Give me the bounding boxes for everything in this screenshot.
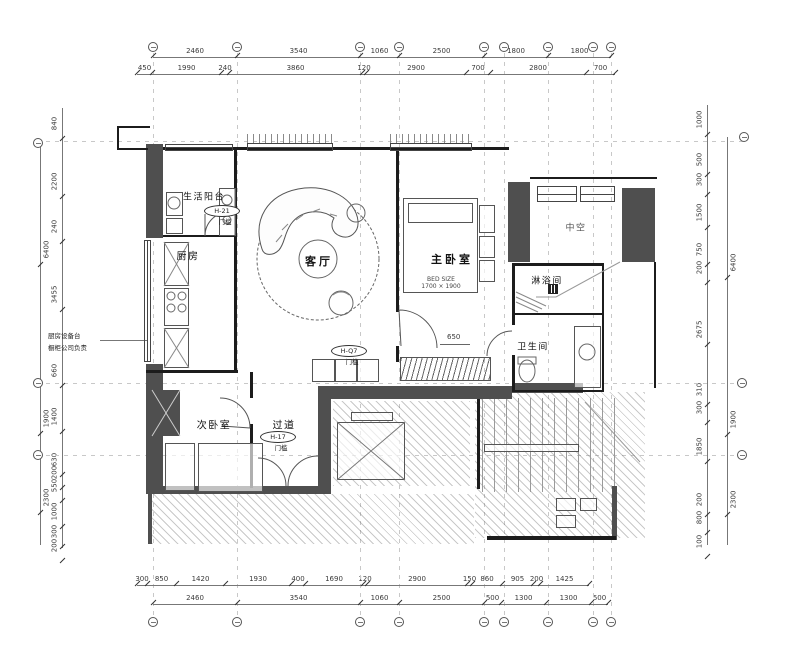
dim-label: 2200 [51,162,60,202]
door-tag-h21-sub: 门槛 [219,216,232,226]
dim-label: 1400 [51,397,60,437]
dim-label: 1900 [730,400,739,440]
dim-label: 450 [125,64,165,73]
room-label-void: 中空 [565,221,586,234]
window [390,143,472,151]
dim-label: 2300 [730,480,739,520]
dim-chain-line [707,105,708,545]
wall-segment [602,263,604,392]
fixture-box [580,498,597,511]
wall-segment [512,355,515,392]
wall-segment [250,372,253,398]
grid-bubble [479,617,489,627]
plan-vector-layer [0,0,800,659]
master-door-arc [399,310,437,348]
wall-segment [234,150,237,372]
shear-wall [508,182,530,262]
grid-bubble [543,617,553,627]
grid-bubble [232,42,242,52]
window-sill-hatch [247,134,333,143]
fixture-box [198,443,263,492]
fixture-box [479,205,495,233]
dim-tick [60,558,66,564]
shear-wall [146,144,163,238]
wall-segment [514,263,604,266]
dim-label: 2460 [175,47,215,56]
wall-segment [396,150,399,312]
window [144,240,151,362]
annotation-leader-line [100,340,148,341]
dim-label: 1990 [167,64,207,73]
window-sill-hatch [390,134,472,143]
dim-label: 2675 [696,310,705,350]
grid-bubble [588,42,598,52]
dim-label: 1420 [181,575,221,584]
dim-chain-line [62,108,63,548]
grid-bubble [499,617,509,627]
grid-bubble [394,42,404,52]
wall-segment [654,262,656,388]
side-table [347,204,365,222]
room-label-kitchen: 厨房 [177,248,200,263]
shear-wall [152,390,180,436]
fixture-box [351,412,393,421]
dim-label: 2500 [422,594,462,603]
dim-label: 100 [696,522,705,562]
fixture-box [556,498,576,511]
dim-tick [705,554,711,560]
dim-chain-line [727,137,728,545]
fixture-box [166,218,183,234]
dim-chain-line [137,585,589,586]
dim-label: 400 [278,575,318,584]
dim-label: 200 [51,526,60,566]
kitchen-annotation-line2: 橱柜公司负责 [48,343,87,353]
wall-segment [117,126,119,150]
dim-label: 500 [580,594,620,603]
dim-label: 2300 [43,478,52,518]
wall-segment [514,313,604,315]
fixture-box [408,203,473,223]
dim-label: 1500 [696,193,705,233]
grid-bubble [606,617,616,627]
armchair [329,291,353,315]
dim-label: 2460 [175,594,215,603]
fixture-box [164,328,189,368]
dim-chain-line [153,604,608,605]
window [247,143,333,151]
dim-label: 1300 [504,594,544,603]
dim-label: 3455 [51,275,60,315]
fixture-box [484,444,579,452]
tv-cabinet [400,357,491,381]
grid-bubble [355,617,365,627]
grid-bubble [737,450,747,460]
dim-tick [587,581,593,587]
dim-label: 1900 [43,399,52,439]
room-label-shower: 淋浴间 [531,274,563,287]
shear-wall [148,494,152,544]
wall-segment [117,126,150,128]
dim-label: 1850 [696,427,705,467]
door-tag-h17-sub: 门槛 [275,442,288,452]
grid-bubble [479,42,489,52]
window [580,186,615,202]
dim-label: 3540 [279,594,319,603]
fixture-box [556,515,576,528]
grid-bubble [737,378,747,388]
shower-screen [516,292,546,312]
door-tag-hq7-sub: 门槛 [346,356,359,366]
grid-bubble [355,42,365,52]
dim-label: 6400 [730,243,739,283]
dim-label: 2500 [422,47,462,56]
dim-label: 1000 [696,100,705,140]
hatched-area [152,494,474,544]
dim-label: 300 [696,388,705,428]
dim-label: 240 [205,64,245,73]
dim-tick [60,544,66,550]
wall-segment [487,536,616,540]
curved-sofa [259,188,358,255]
sofa-pattern [276,209,337,242]
dim-label: 660 [51,351,60,391]
fixture-box [165,443,195,491]
fixture-box [479,236,495,258]
dim-label: 240 [51,207,60,247]
dim-label: 840 [51,104,60,144]
wall-segment [514,390,604,392]
dim-label: 3540 [279,47,319,56]
dim-label: 2800 [518,64,558,73]
grid-bubble [232,617,242,627]
grid-bubble [148,42,158,52]
dim-chain-line [137,74,615,75]
dim-label: 1930 [238,575,278,584]
wall-segment [512,263,515,325]
shear-wall [612,486,617,540]
dim-label: 1425 [545,575,585,584]
entry-door-arcs [258,456,318,486]
shear-wall [318,399,331,488]
dim-label: 2900 [396,64,436,73]
fixture-box [479,260,495,282]
dim-label: 3860 [276,64,316,73]
dim-label: 6400 [43,230,52,270]
room-label-living: 客厅 [305,253,333,269]
kitchen-annotation-line1: 厨房设备台 [48,331,81,341]
dim-chain-line [153,57,611,58]
grid-bubble [499,42,509,52]
wall-segment [530,177,657,179]
grid-bubble [33,138,43,148]
shear-wall [318,386,512,399]
armchair-back [333,292,349,295]
door-dim-line [440,344,470,345]
fixture-box [337,422,405,480]
fixture-box [334,360,336,381]
grid-bubble [33,378,43,388]
wall-segment [477,399,480,489]
room-label-second-bedroom: 次卧室 [197,417,232,432]
grid-bubble [394,617,404,627]
dim-chain-line [40,143,41,545]
grid-bubble [588,617,598,627]
shear-wall [622,188,655,262]
fixture-box [166,192,183,216]
room-label-corridor: 过道 [273,417,296,432]
window [165,144,233,151]
dim-label: 200 [696,248,705,288]
wall-segment [117,148,148,150]
bed-size-note: BED SIZE 1700 × 1900 [421,276,460,290]
grid-bubble [739,132,749,142]
wall-segment [396,346,399,362]
room-label-balcony: 生活阳台 [183,190,225,203]
door-dim-650: 650 [447,333,460,342]
window [537,186,577,202]
floor-plan-canvas: 生活阳台 厨房 客厅 主卧室 淋浴间 卫生间 次卧室 过道 中空 BED SIZ… [0,0,800,659]
wall-segment [146,370,238,373]
grid-bubble [543,42,553,52]
dim-label: 2900 [397,575,437,584]
grid-bubble [33,450,43,460]
grid-bubble [606,42,616,52]
toilet-tank [518,357,536,364]
fixture-box [164,288,189,326]
room-label-bath: 卫生间 [517,340,549,353]
dim-label: 1060 [360,594,400,603]
room-label-master: 主卧室 [431,251,473,267]
toilet [519,360,535,382]
grid-bubble [148,617,158,627]
bath-door-arc [487,331,512,356]
fixture-box [574,326,601,388]
